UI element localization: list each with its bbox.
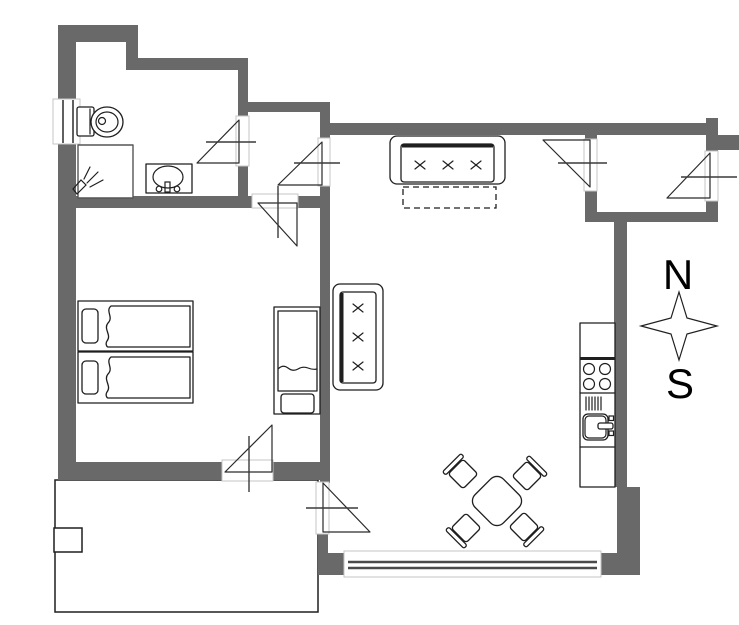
west-window [53, 99, 80, 144]
floor-plan: N S [0, 0, 739, 625]
wall-segment [320, 185, 330, 483]
wall-segment [585, 123, 597, 140]
bed-1 [78, 301, 193, 351]
wall-segment [272, 462, 330, 480]
wall-segment [58, 143, 76, 480]
terrace [54, 480, 318, 612]
door-jamb [222, 460, 273, 481]
compass-north-label: N [663, 251, 693, 298]
wall-segment [238, 165, 248, 208]
wall-segment [614, 222, 627, 487]
floor-plan-svg: N S [0, 0, 739, 625]
stove-edge [580, 357, 615, 360]
wall-segment [717, 135, 739, 150]
shower [73, 145, 133, 198]
wall-segment [58, 462, 223, 480]
wall-segment [585, 212, 718, 222]
sofa-two-seat [333, 284, 383, 390]
wall-segment [58, 25, 138, 42]
terrace-step [54, 528, 82, 552]
bed-2 [78, 352, 193, 403]
wall-segment [320, 102, 330, 138]
door-jamb [318, 138, 330, 186]
wall-segment [617, 487, 640, 575]
wall-segment [329, 123, 717, 135]
wall-segment [585, 190, 597, 212]
door-jamb [705, 151, 718, 201]
wall-segment [706, 118, 718, 152]
wall-segment [318, 533, 328, 555]
terrace-outline [55, 480, 318, 612]
wall-segment [706, 200, 718, 222]
south-window [344, 551, 601, 577]
faucet [598, 423, 613, 429]
crib [274, 307, 320, 414]
wall-segment [238, 102, 330, 112]
wall-segment [126, 58, 248, 70]
washbasin [146, 164, 192, 193]
door-jamb [236, 116, 249, 166]
door-jamb [252, 194, 298, 208]
kitchen-counter [580, 323, 615, 487]
compass-south-label: S [666, 360, 694, 407]
toilet [77, 107, 123, 137]
wall-segment [318, 553, 345, 575]
